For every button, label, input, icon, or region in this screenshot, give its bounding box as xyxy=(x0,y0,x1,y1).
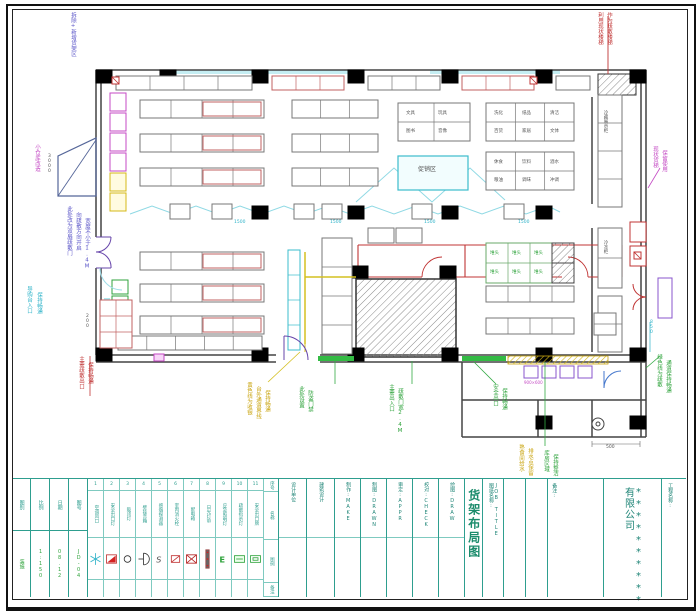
sheet-outer-border xyxy=(6,4,696,611)
drawing-sheet: 拆除+新增货架区小仓库改造导购台入口保持畅通此处改为双扇疏散门向疏散方向开启宽度… xyxy=(0,0,700,616)
